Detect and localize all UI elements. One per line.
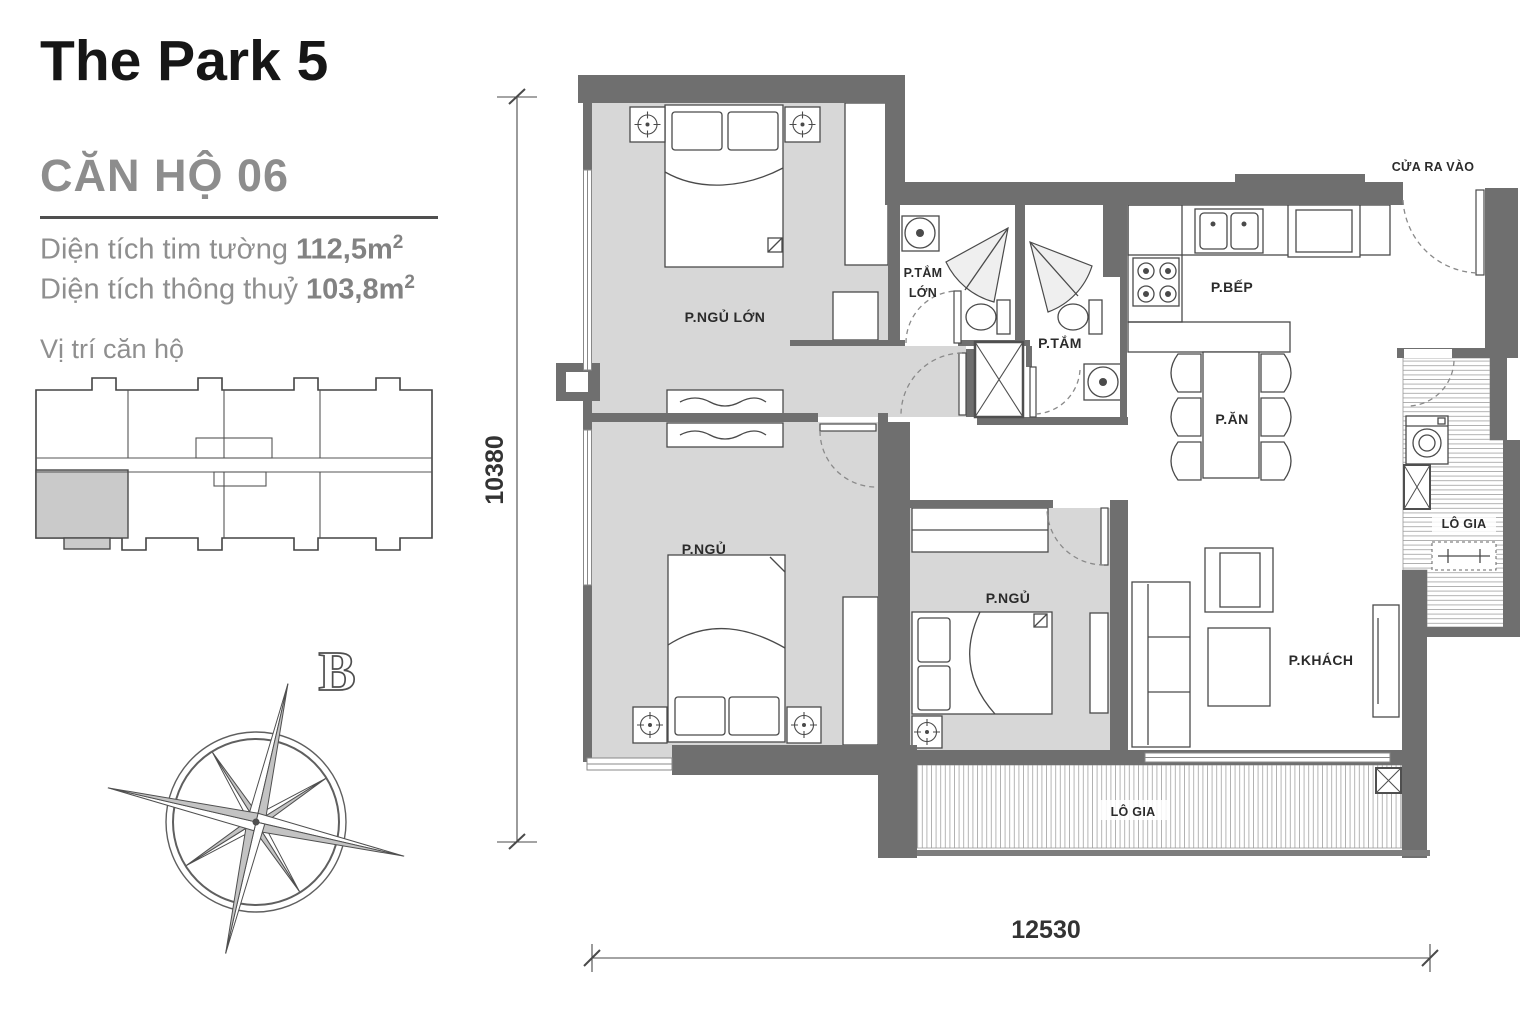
- chair: [1171, 442, 1201, 480]
- bedroom2-wardrobe: [843, 597, 878, 745]
- label-master-bath-2: LỚN: [909, 285, 937, 300]
- door-leaf: [1101, 508, 1108, 565]
- shaft-small-side: [1404, 465, 1430, 509]
- kitchen-peninsula: [1128, 322, 1290, 352]
- pillow: [729, 697, 779, 735]
- label-bedroom2: P.NGỦ: [682, 540, 727, 557]
- door-leaf: [1030, 367, 1036, 417]
- pillow: [918, 618, 950, 662]
- kitchen-furniture: [1128, 205, 1390, 352]
- bedroom3-cabinet: [1090, 613, 1108, 713]
- toilet-tank: [997, 300, 1010, 334]
- label-entrance: CỬA RA VÀO: [1392, 159, 1475, 174]
- label-master-bath-1: P.TẮM: [904, 265, 943, 280]
- dimension-width: 12530: [1011, 916, 1081, 944]
- pillow: [675, 697, 725, 735]
- chair: [1171, 398, 1201, 436]
- entry-door-leaf: [1476, 190, 1484, 275]
- master-wardrobe: [845, 103, 888, 265]
- kitchen-sink-unit: [1195, 209, 1263, 253]
- door-opening: [1404, 349, 1452, 358]
- dresser: [833, 292, 878, 340]
- label-dining: P.ĂN: [1215, 411, 1248, 427]
- chair: [1171, 354, 1201, 392]
- pillow: [728, 112, 778, 150]
- technical-shaft: [975, 342, 1023, 417]
- toilet-icon: [966, 304, 996, 330]
- chair: [1261, 398, 1291, 436]
- corridor-floor: [790, 346, 966, 417]
- chair: [1261, 442, 1291, 480]
- entry-door-arc: [1403, 200, 1478, 273]
- sofa: [1132, 582, 1190, 747]
- floorplan-page: { "header": { "title": "The Park 5", "un…: [0, 0, 1536, 1025]
- label-bedroom3: P.NGỦ: [986, 589, 1031, 606]
- living-furniture: [1132, 548, 1399, 747]
- toilet-tank: [1089, 300, 1102, 334]
- tv-console: [1373, 605, 1399, 717]
- armchair: [1205, 548, 1273, 612]
- label-living: P.KHÁCH: [1289, 652, 1354, 668]
- door-leaf: [820, 424, 876, 431]
- label-master-bedroom: P.NGỦ LỚN: [685, 308, 766, 325]
- dimension-height: 10380: [481, 435, 509, 505]
- floor-plan: P.NGỦ LỚN P.TẮM LỚN P.TẮM P.BẾP P.ĂN P.N…: [0, 0, 1536, 1025]
- label-loggia-bottom: LÔ GIA: [1111, 804, 1156, 819]
- pillow: [918, 666, 950, 710]
- label-kitchen: P.BẾP: [1211, 279, 1253, 295]
- shaft-small-bottom: [1376, 768, 1401, 793]
- label-bath2: P.TẮM: [1038, 334, 1082, 351]
- pillow: [672, 112, 722, 150]
- door-leaf: [954, 291, 961, 343]
- toilet-icon: [1058, 304, 1088, 330]
- door-leaf: [959, 353, 966, 415]
- coffee-table: [1208, 628, 1270, 706]
- fridge: [1288, 205, 1360, 257]
- label-loggia-side: LÔ GIA: [1442, 516, 1487, 531]
- chair: [1261, 354, 1291, 392]
- column-pier: [566, 372, 588, 392]
- door-arc: [1036, 370, 1080, 414]
